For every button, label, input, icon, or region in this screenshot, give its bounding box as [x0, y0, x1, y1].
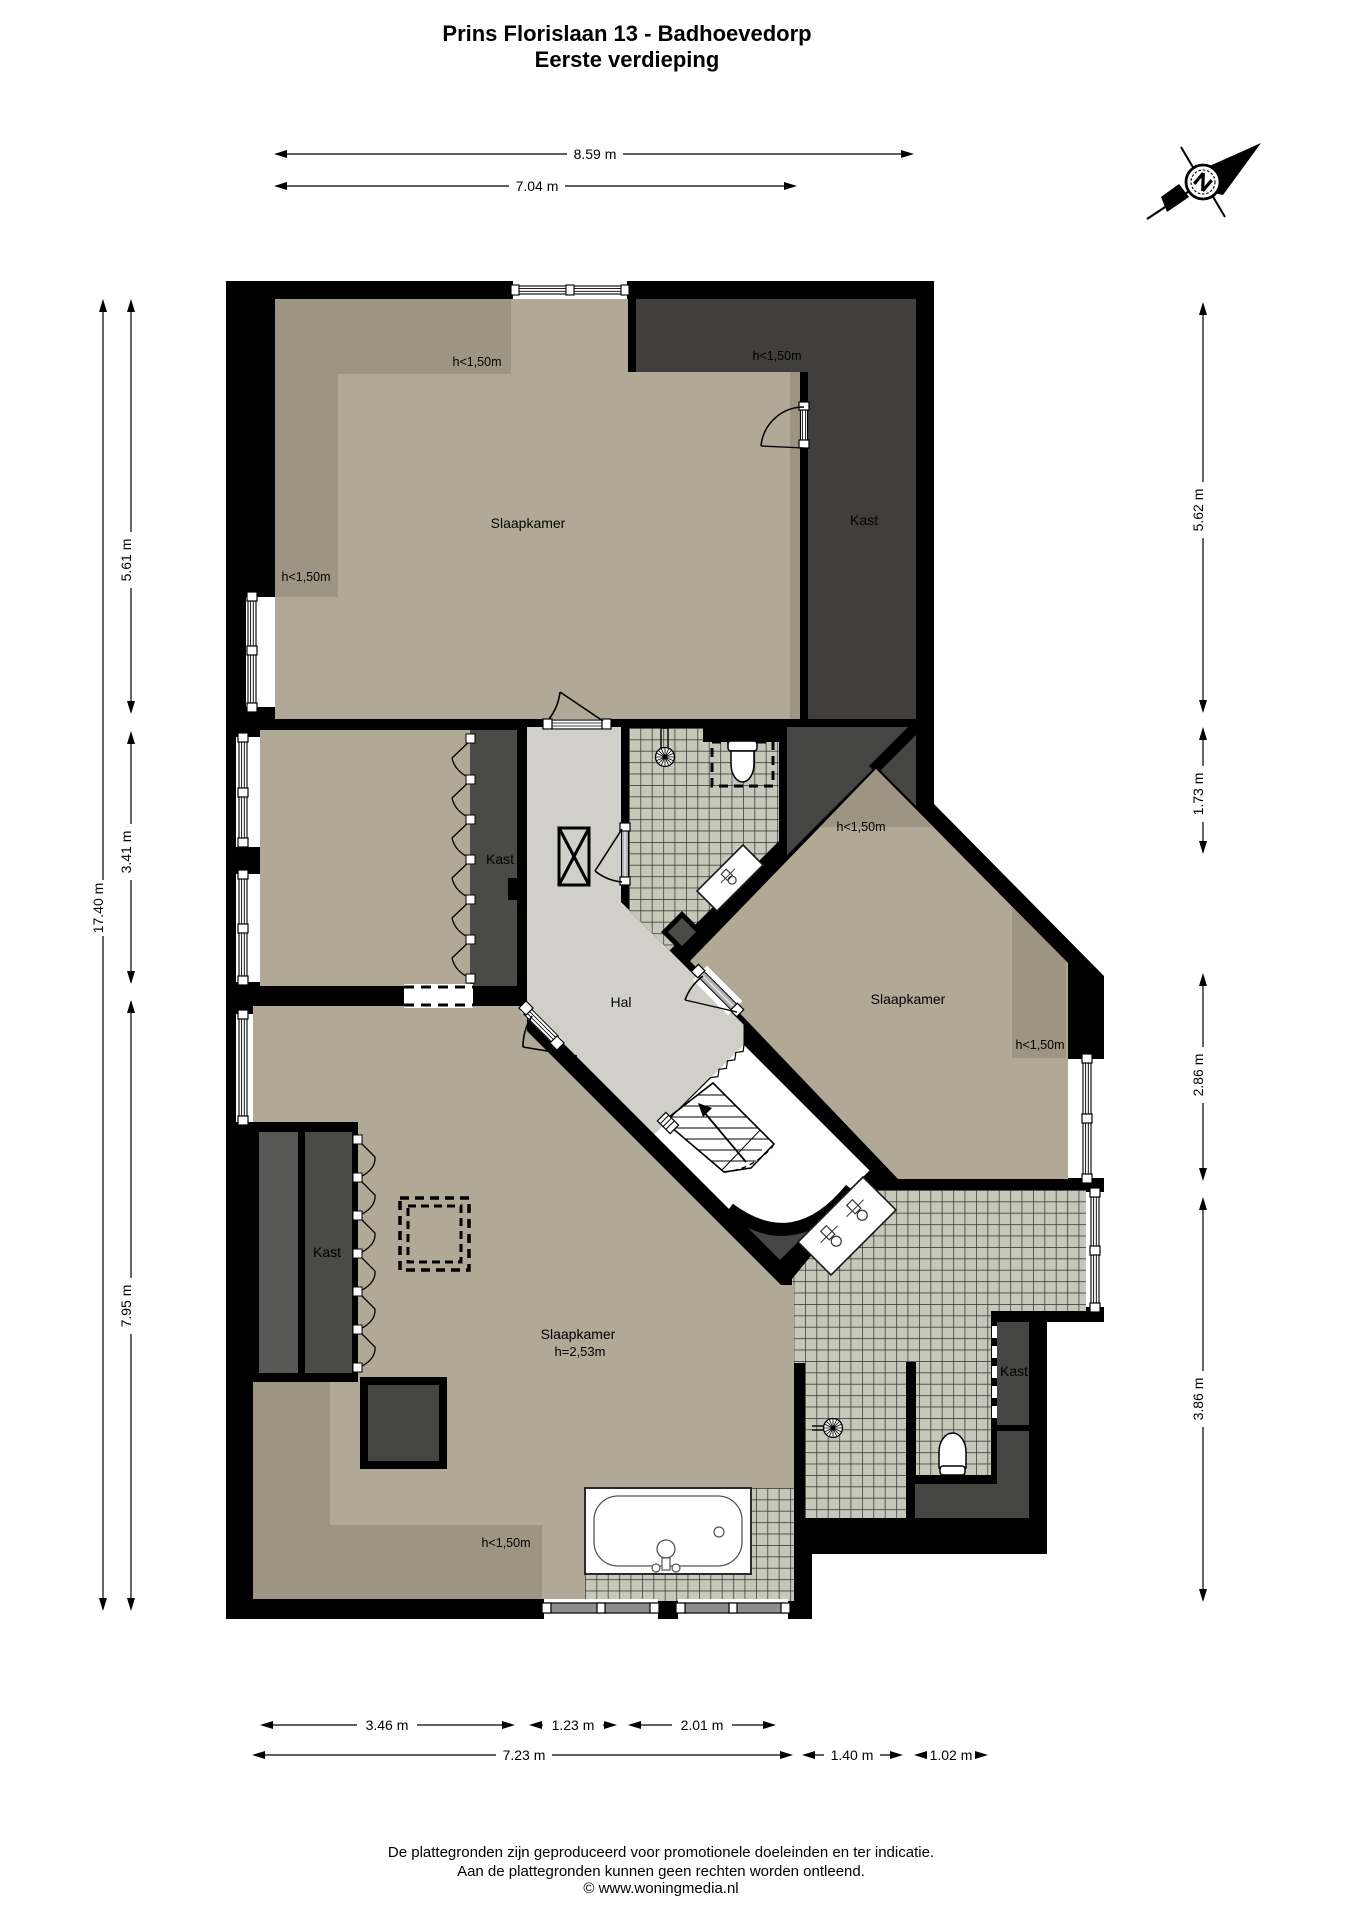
svg-text:7.23 m: 7.23 m: [503, 1747, 546, 1763]
svg-text:2.01 m: 2.01 m: [681, 1717, 724, 1733]
svg-text:Slaapkamer: Slaapkamer: [541, 1326, 616, 1342]
svg-text:Kast: Kast: [486, 851, 514, 867]
svg-text:Kast: Kast: [1000, 1363, 1028, 1379]
svg-text:h<1,50m: h<1,50m: [837, 820, 886, 834]
svg-text:5.62 m: 5.62 m: [1190, 489, 1206, 532]
svg-text:© www.woningmedia.nl: © www.woningmedia.nl: [583, 1880, 738, 1897]
svg-text:3.46 m: 3.46 m: [366, 1717, 409, 1733]
svg-text:7.04 m: 7.04 m: [516, 178, 559, 194]
svg-text:h<1,50m: h<1,50m: [282, 570, 331, 584]
svg-text:17.40 m: 17.40 m: [90, 883, 106, 934]
svg-text:2.86 m: 2.86 m: [1190, 1054, 1206, 1097]
svg-text:8.59 m: 8.59 m: [574, 146, 617, 162]
svg-text:De plattegronden zijn geproduc: De plattegronden zijn geproduceerd voor …: [388, 1844, 934, 1861]
svg-text:3.41 m: 3.41 m: [118, 831, 134, 874]
svg-text:5.61 m: 5.61 m: [118, 539, 134, 582]
svg-text:Prins Florislaan 13 - Badhoeve: Prins Florislaan 13 - Badhoevedorp: [442, 21, 811, 46]
svg-text:7.95 m: 7.95 m: [118, 1285, 134, 1328]
svg-text:1.23 m: 1.23 m: [552, 1717, 595, 1733]
svg-text:h<1,50m: h<1,50m: [482, 1536, 531, 1550]
svg-text:h<1,50m: h<1,50m: [753, 349, 802, 363]
svg-text:Slaapkamer: Slaapkamer: [491, 515, 566, 531]
svg-text:h<1,50m: h<1,50m: [1016, 1038, 1065, 1052]
svg-text:Eerste verdieping: Eerste verdieping: [535, 47, 720, 72]
svg-text:h<1,50m: h<1,50m: [453, 355, 502, 369]
svg-text:3.86 m: 3.86 m: [1190, 1378, 1206, 1421]
svg-text:1.73 m: 1.73 m: [1190, 773, 1206, 816]
svg-text:Hal: Hal: [610, 994, 631, 1010]
svg-text:h=2,53m: h=2,53m: [555, 1344, 606, 1359]
svg-text:Kast: Kast: [850, 512, 878, 528]
svg-text:1.02 m: 1.02 m: [930, 1747, 973, 1763]
svg-text:1.40 m: 1.40 m: [831, 1747, 874, 1763]
svg-text:Kast: Kast: [313, 1244, 341, 1260]
svg-text:Slaapkamer: Slaapkamer: [871, 991, 946, 1007]
svg-text:Aan de plattegronden kunnen ge: Aan de plattegronden kunnen geen rechten…: [457, 1863, 865, 1880]
